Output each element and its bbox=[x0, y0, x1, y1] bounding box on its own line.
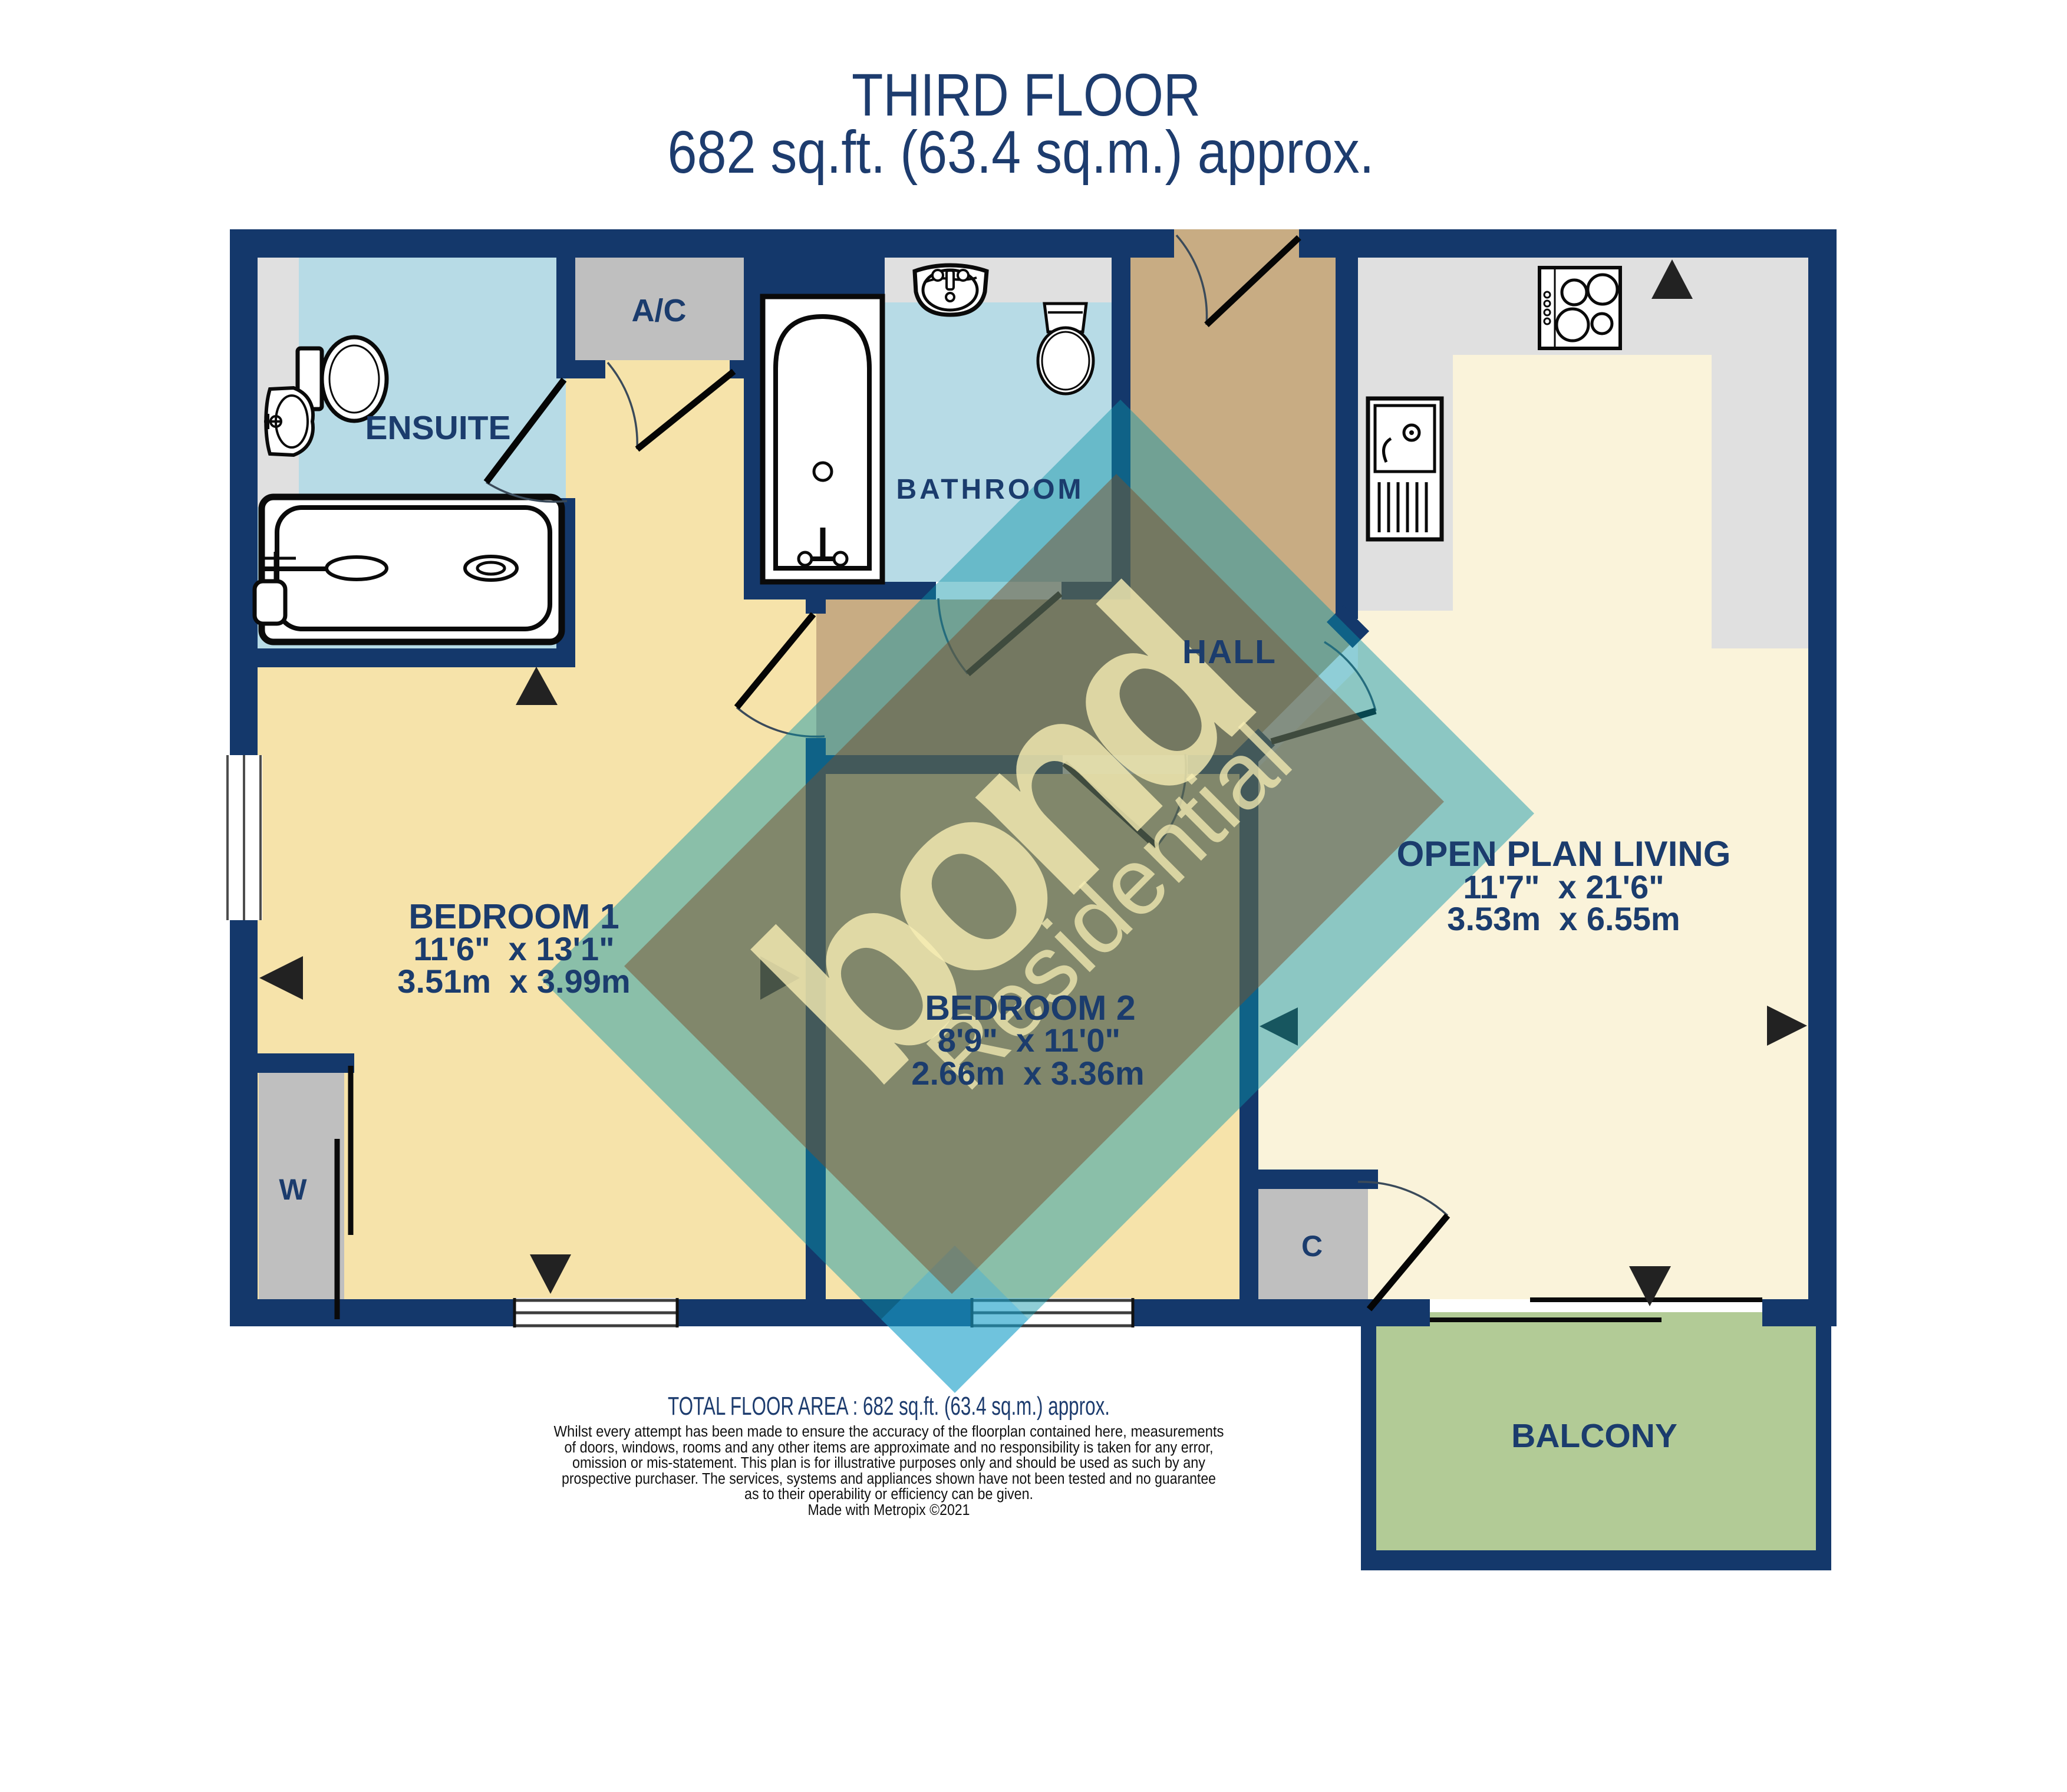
svg-text:C: C bbox=[1301, 1230, 1323, 1263]
svg-text:BATHROOM: BATHROOM bbox=[896, 474, 1084, 505]
svg-text:of doors, windows, rooms and a: of doors, windows, rooms and any other i… bbox=[565, 1439, 1214, 1456]
svg-text:3.53m x 6.55m: 3.53m x 6.55m bbox=[1447, 900, 1680, 937]
svg-text:8'9" x 11'0": 8'9" x 11'0" bbox=[938, 1022, 1120, 1059]
svg-text:BALCONY: BALCONY bbox=[1511, 1417, 1677, 1455]
svg-text:A/C: A/C bbox=[632, 293, 687, 328]
svg-text:ENSUITE: ENSUITE bbox=[365, 409, 510, 447]
svg-text:3.51m x 3.99m: 3.51m x 3.99m bbox=[397, 963, 630, 1000]
svg-text:Whilst every attempt has been: Whilst every attempt has been made to en… bbox=[554, 1424, 1224, 1440]
svg-text:OPEN PLAN LIVING: OPEN PLAN LIVING bbox=[1397, 834, 1731, 874]
svg-text:as to their operability or eff: as to their operability or efficiency ca… bbox=[744, 1486, 1033, 1503]
svg-text:W: W bbox=[279, 1173, 307, 1206]
svg-text:TOTAL FLOOR AREA : 682 sq.ft.: TOTAL FLOOR AREA : 682 sq.ft. (63.4 sq.m… bbox=[668, 1392, 1110, 1421]
svg-text:2.66m x 3.36m: 2.66m x 3.36m bbox=[911, 1055, 1144, 1092]
svg-text:Made with Metropix ©2021: Made with Metropix ©2021 bbox=[808, 1502, 970, 1518]
svg-text:682 sq.ft. (63.4 sq.m.) approx: 682 sq.ft. (63.4 sq.m.) approx. bbox=[668, 118, 1374, 186]
svg-text:HALL: HALL bbox=[1182, 633, 1277, 671]
svg-text:prospective purchaser. The ser: prospective purchaser. The services, sys… bbox=[562, 1471, 1216, 1487]
svg-text:11'6" x 13'1": 11'6" x 13'1" bbox=[413, 930, 614, 967]
svg-text:omission or mis-statement. Thi: omission or mis-statement. This plan is … bbox=[572, 1455, 1205, 1471]
